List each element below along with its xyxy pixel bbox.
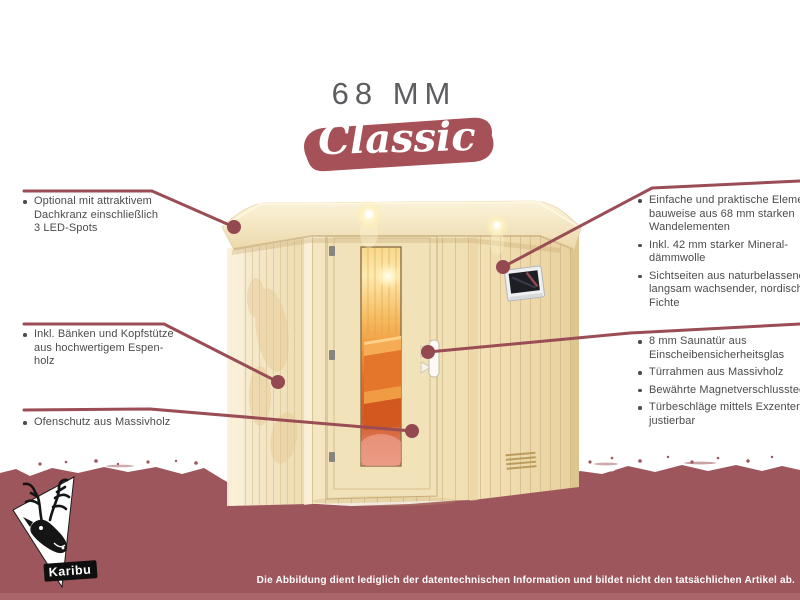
callout-wandelemente-text: Einfache und praktische Element- bauweis…: [637, 194, 800, 314]
callout-line: 3 LED-Spots: [34, 222, 158, 236]
bullet-icon: [637, 384, 649, 398]
callout-line: Bewährte Magnetverschlusstechnik: [649, 384, 800, 398]
bullet-icon: [637, 194, 649, 235]
callout-line: justierbar: [649, 415, 800, 429]
callout-ofenschutz-text: Ofenschutz aus Massivholz: [22, 416, 170, 434]
callout-line: Wandelementen: [649, 221, 800, 235]
bullet-icon: [22, 195, 34, 236]
bullet-icon: [22, 328, 34, 369]
interior-lamp-glow: [375, 263, 401, 289]
sauna-control-panel: [504, 266, 545, 301]
callout-line: holz: [34, 355, 174, 369]
series-name-script: Classic: [295, 112, 498, 165]
callout-line: Einfache und praktische Element-: [649, 194, 800, 208]
callout-line: Ofenschutz aus Massivholz: [34, 416, 170, 430]
callout-saunatuer-text: 8 mm Saunatür aus Einscheibensicherheits…: [637, 335, 800, 432]
callout-line: aus hochwertigem Espen-: [34, 342, 174, 356]
bullet-icon: [637, 270, 649, 311]
callout-line: Inkl. 42 mm starker Mineral-: [649, 239, 788, 253]
sauna-illustration: [222, 200, 581, 506]
callout-line: langsam wachsender, nordischer: [649, 283, 800, 297]
brochure-page: 68 MM Classic Optional mit attraktivem D…: [0, 0, 800, 600]
callout-line: Dachkranz einschließlich: [34, 209, 158, 223]
callout-line: 8 mm Saunatür aus: [649, 335, 784, 349]
callout-line: dämmwolle: [649, 252, 788, 266]
callout-baenke-text: Inkl. Bänken und Kopfstütze aus hochwert…: [22, 328, 174, 373]
callout-line: Einscheibensicherheitsglas: [649, 349, 784, 363]
callout-line: Türbeschläge mittels Exzenter: [649, 401, 800, 415]
series-banner: Classic: [295, 115, 498, 175]
bullet-icon: [637, 335, 649, 362]
callout-line: Inkl. Bänken und Kopfstütze: [34, 328, 174, 342]
callout-line: Sichtseiten aus naturbelassener,: [649, 270, 800, 284]
callout-line: bauweise aus 68 mm starken: [649, 208, 800, 222]
bullet-icon: [637, 239, 649, 266]
callout-line: Fichte: [649, 297, 800, 311]
bullet-icon: [22, 416, 34, 430]
callout-line: Türrahmen aus Massivholz: [649, 366, 783, 380]
page-title-size: 68 MM: [0, 76, 788, 112]
bullet-icon: [637, 401, 649, 428]
callout-dachkranz-text: Optional mit attraktivem Dachkranz einsc…: [22, 195, 158, 240]
bullet-icon: [637, 366, 649, 380]
callout-line: Optional mit attraktivem: [34, 195, 158, 209]
disclaimer-text: Die Abbildung dient lediglich der datent…: [0, 575, 795, 586]
sauna-door: [327, 231, 439, 499]
